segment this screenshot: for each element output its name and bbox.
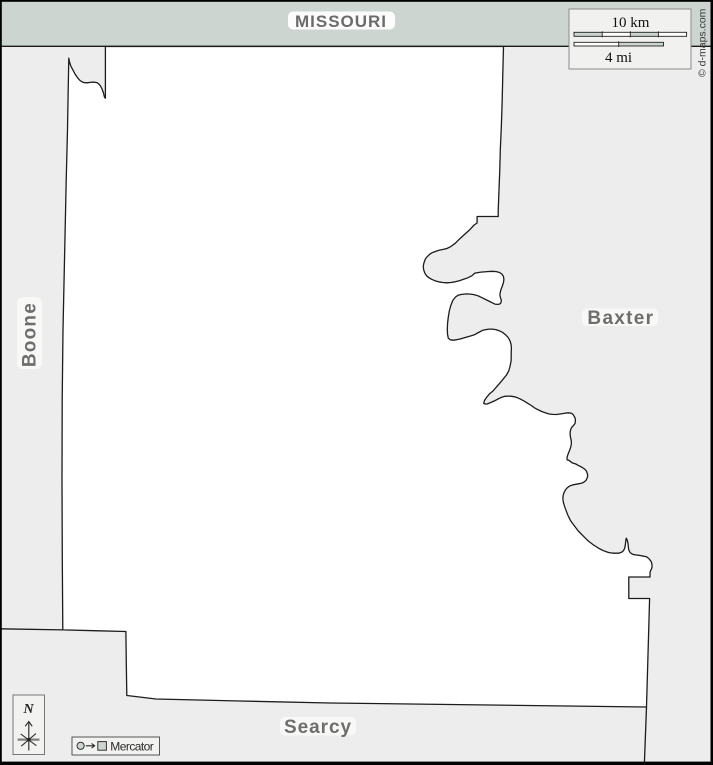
svg-text:Baxter: Baxter: [587, 308, 654, 329]
svg-text:Boone: Boone: [20, 302, 41, 367]
svg-text:10 km: 10 km: [612, 15, 650, 31]
svg-text:© d-maps.com: © d-maps.com: [697, 8, 709, 77]
svg-text:N: N: [22, 702, 34, 717]
svg-text:Mercator: Mercator: [110, 740, 154, 754]
svg-text:MISSOURI: MISSOURI: [295, 12, 387, 31]
svg-text:4 mi: 4 mi: [605, 50, 632, 66]
svg-text:Searcy: Searcy: [284, 717, 352, 738]
